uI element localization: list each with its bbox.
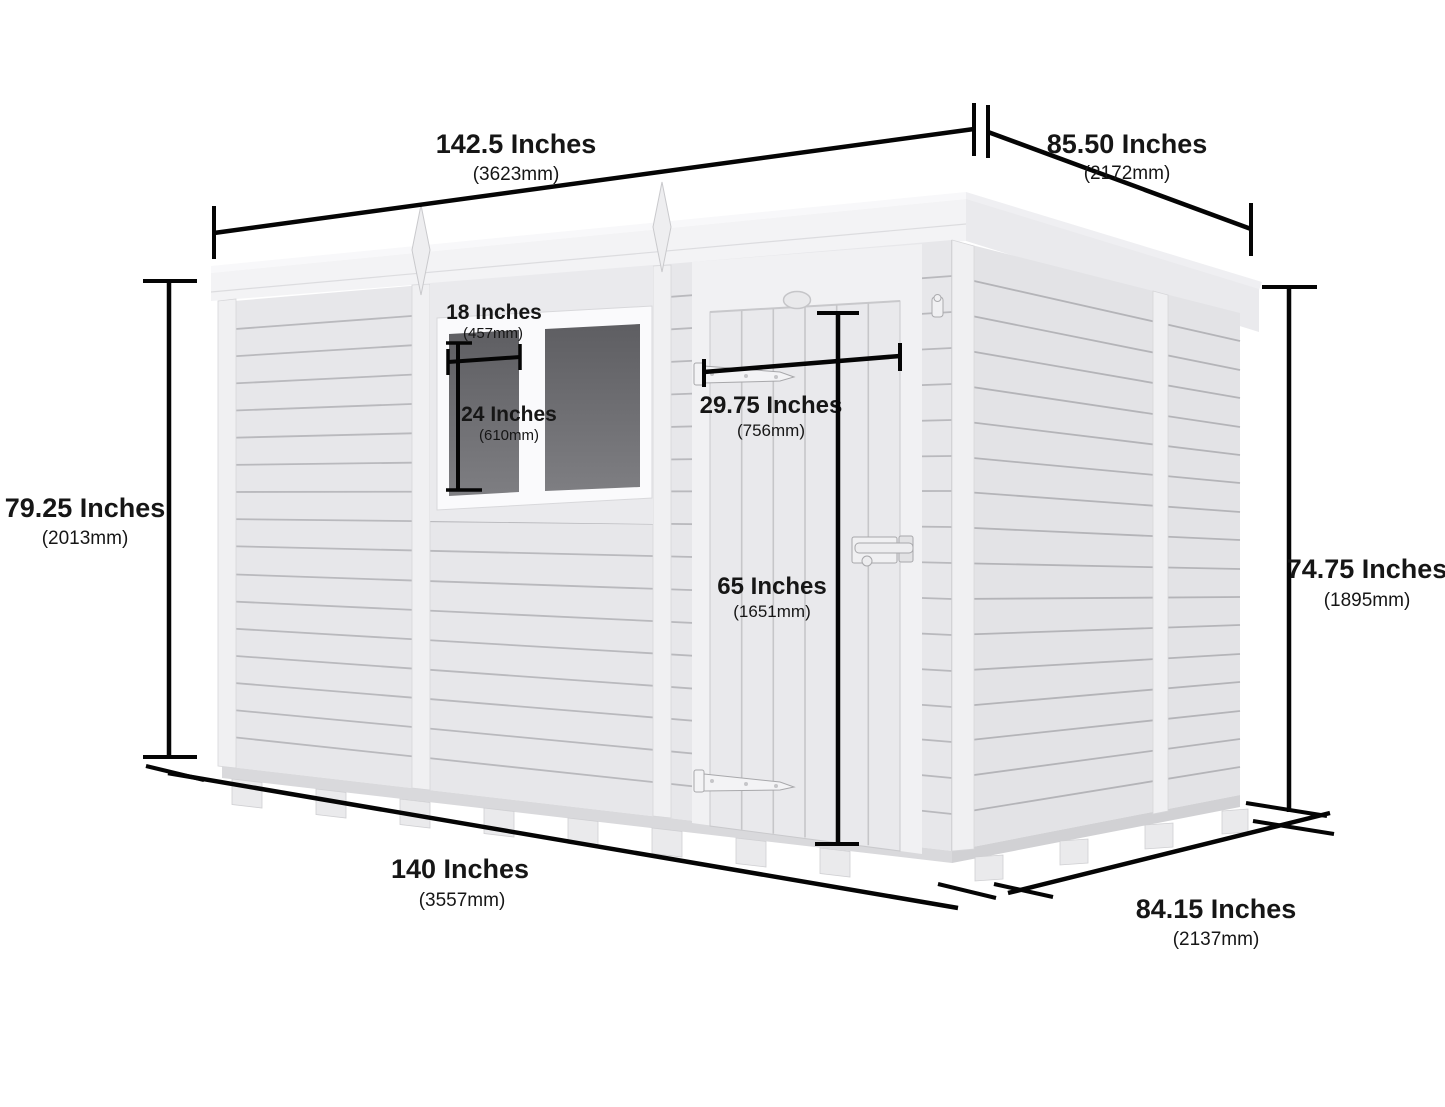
rear-height-mm: (1895mm) (1324, 590, 1411, 611)
wall-trim-1 (412, 284, 430, 790)
door-height-mm: (1651mm) (733, 602, 810, 621)
dim-rear-height: 74.75 Inches (1895mm) (1246, 287, 1445, 834)
window-height-mm: (610mm) (479, 427, 539, 444)
door-width-mm: (756mm) (737, 421, 805, 440)
roof-depth-inches: 85.50 Inches (1047, 129, 1208, 159)
rear-height-inches: 74.75 Inches (1287, 554, 1445, 584)
door-assembly (692, 244, 943, 854)
front-height-mm: (2013mm) (42, 528, 129, 549)
roof-width-inches: 142.5 Inches (436, 129, 597, 159)
door-latch (852, 536, 913, 566)
door-hinge-pin (932, 295, 943, 318)
door-height-inches: 65 Inches (717, 573, 826, 600)
base-depth-mm: (2137mm) (1173, 929, 1260, 950)
window-height-inches: 24 Inches (461, 403, 557, 426)
base-width-mm: (3557mm) (419, 890, 506, 911)
base-depth-inches: 84.15 Inches (1136, 894, 1297, 924)
roof-width-mm: (3623mm) (473, 164, 560, 185)
front-height-inches: 79.25 Inches (5, 493, 166, 523)
shed-dimension-diagram: 142.5 Inches (3623mm) 85.50 Inches (2172… (0, 0, 1445, 1107)
window-width-mm: (457mm) (463, 325, 523, 342)
side-back-trim (1153, 291, 1168, 814)
shed-illustration: 142.5 Inches (3623mm) 85.50 Inches (2172… (0, 0, 1445, 1107)
corner-trim-side (952, 240, 974, 851)
dim-front-height: 79.25 Inches (2013mm) (5, 281, 197, 757)
base-width-inches: 140 Inches (391, 854, 529, 884)
corner-trim-left (218, 299, 236, 768)
window-width-inches: 18 Inches (446, 301, 542, 324)
window-glass-right (545, 324, 640, 491)
side-wall (952, 240, 1240, 851)
roof-depth-mm: (2172mm) (1084, 163, 1171, 184)
maker-emblem (784, 292, 811, 309)
wall-trim-2 (653, 265, 671, 818)
door-width-inches: 29.75 Inches (700, 392, 843, 419)
